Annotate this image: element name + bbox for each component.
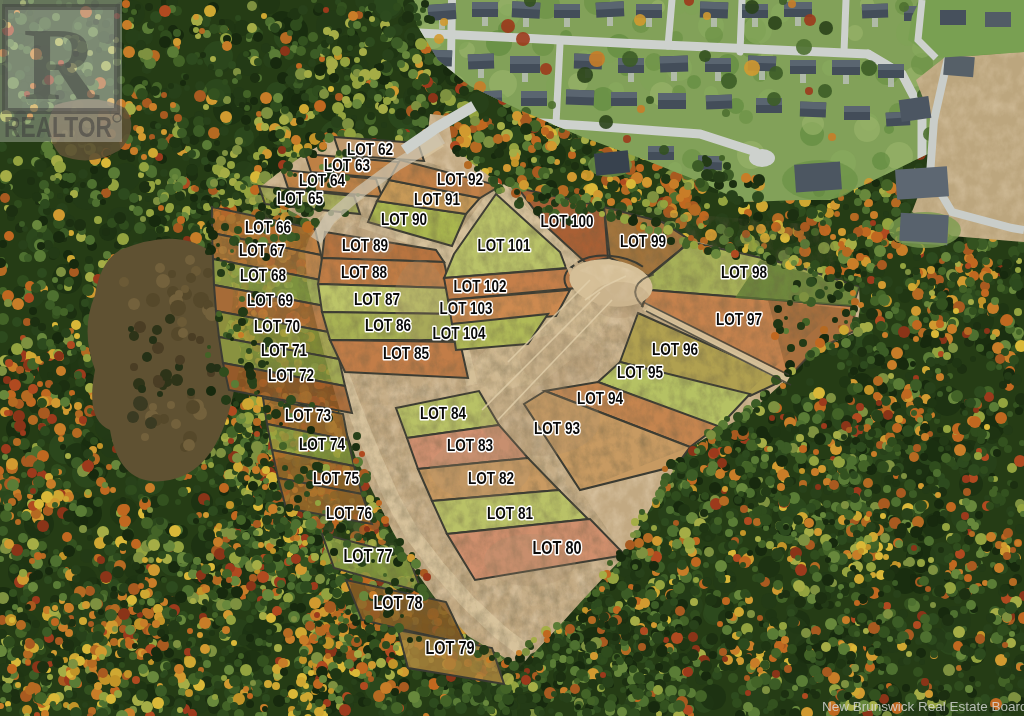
svg-text:LOT 71: LOT 71 (261, 341, 307, 359)
svg-text:LOT 67: LOT 67 (239, 241, 285, 259)
svg-text:LOT 75: LOT 75 (313, 469, 359, 487)
svg-text:LOT 91: LOT 91 (414, 190, 460, 208)
svg-text:LOT 79: LOT 79 (426, 638, 475, 658)
svg-text:LOT 65: LOT 65 (277, 189, 323, 207)
svg-text:LOT 101: LOT 101 (478, 236, 531, 254)
svg-text:LOT 89: LOT 89 (342, 236, 388, 254)
svg-text:LOT 80: LOT 80 (533, 538, 582, 558)
svg-text:LOT 92: LOT 92 (437, 170, 483, 188)
svg-text:LOT 85: LOT 85 (383, 344, 429, 362)
svg-text:New Brunswick Real Estate Boar: New Brunswick Real Estate Board (822, 699, 1024, 714)
svg-text:LOT 97: LOT 97 (716, 310, 762, 328)
svg-text:LOT 90: LOT 90 (381, 210, 427, 228)
svg-text:LOT 99: LOT 99 (620, 232, 666, 250)
svg-text:LOT 64: LOT 64 (299, 171, 346, 189)
svg-text:LOT 86: LOT 86 (365, 316, 411, 334)
svg-text:LOT 68: LOT 68 (240, 266, 286, 284)
svg-text:LOT 66: LOT 66 (245, 218, 291, 236)
svg-text:LOT 100: LOT 100 (541, 212, 594, 230)
svg-text:LOT 76: LOT 76 (326, 504, 372, 522)
svg-text:LOT 84: LOT 84 (420, 404, 467, 422)
svg-text:LOT 96: LOT 96 (652, 340, 698, 358)
svg-text:LOT 93: LOT 93 (534, 419, 580, 437)
svg-text:LOT 103: LOT 103 (440, 299, 493, 317)
svg-text:LOT 94: LOT 94 (577, 389, 624, 407)
svg-text:REALTOR: REALTOR (4, 110, 112, 143)
svg-text:LOT 74: LOT 74 (299, 435, 346, 453)
svg-text:LOT 88: LOT 88 (341, 263, 387, 281)
svg-text:LOT 102: LOT 102 (454, 277, 507, 295)
svg-text:LOT 104: LOT 104 (433, 324, 487, 342)
svg-text:LOT 70: LOT 70 (254, 317, 300, 335)
svg-text:LOT 78: LOT 78 (374, 593, 423, 613)
svg-text:LOT 87: LOT 87 (354, 290, 400, 308)
svg-text:LOT 77: LOT 77 (344, 546, 393, 566)
svg-text:LOT 98: LOT 98 (721, 263, 767, 281)
svg-text:LOT 83: LOT 83 (447, 436, 493, 454)
svg-text:LOT 95: LOT 95 (617, 363, 663, 381)
svg-text:LOT 69: LOT 69 (247, 291, 293, 309)
svg-text:LOT 73: LOT 73 (285, 406, 331, 424)
svg-text:R: R (23, 6, 100, 121)
svg-text:LOT 82: LOT 82 (468, 469, 514, 487)
svg-text:LOT 81: LOT 81 (487, 504, 533, 522)
svg-text:LOT 72: LOT 72 (268, 366, 314, 384)
